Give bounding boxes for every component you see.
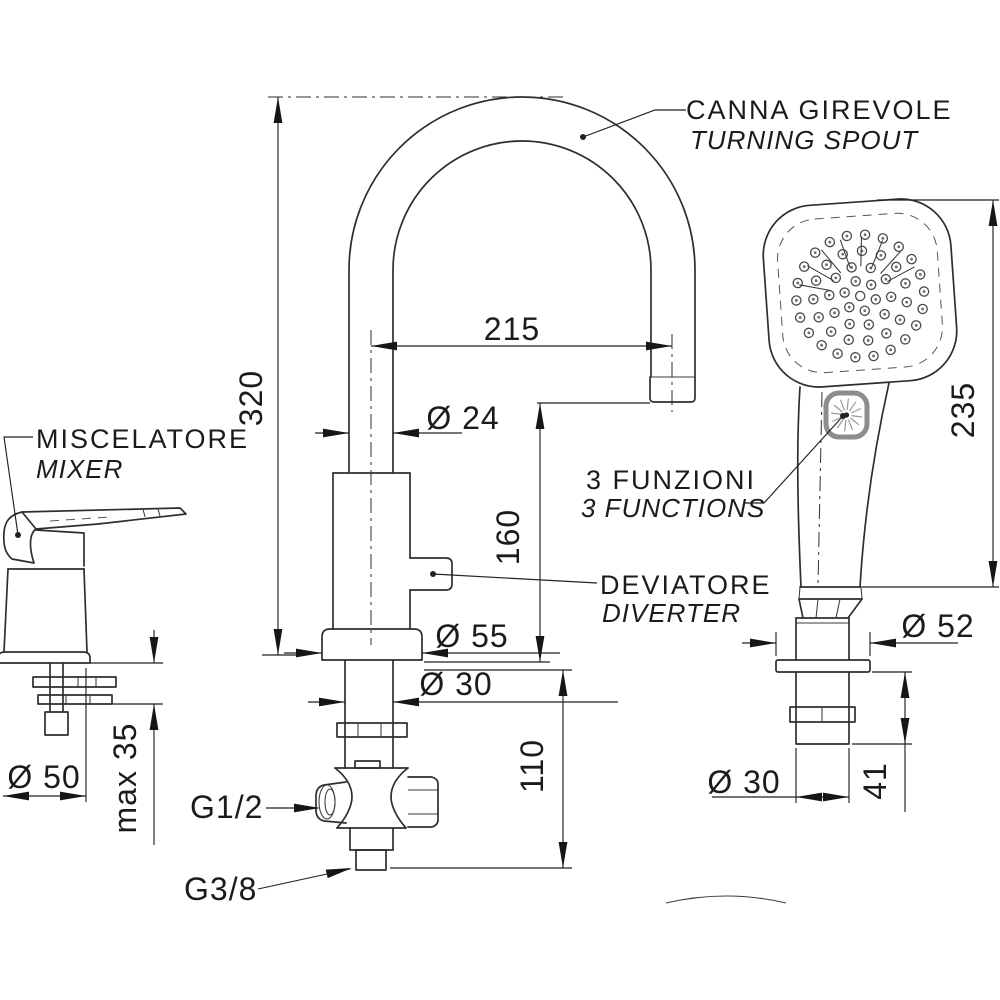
dim-holder-flange: Ø 52 <box>901 608 974 644</box>
label-functions-it: 3 FUNZIONI <box>586 465 756 495</box>
mixer-washer-bottom <box>38 695 112 704</box>
bottom-arc <box>666 896 786 903</box>
dim-inlet-thread: G1/2 <box>190 789 263 825</box>
dim-holder-under-deck: 41 <box>857 762 893 800</box>
dim-holder-shank: Ø 30 <box>707 764 780 800</box>
label-diverter-en: DIVERTER <box>602 598 741 628</box>
dimension-arrowheads <box>3 97 997 878</box>
dim-base-flange: Ø 55 <box>435 618 508 654</box>
mixer-lever <box>22 508 186 529</box>
dim-mixer-base: Ø 50 <box>7 759 80 795</box>
shower-holder <box>776 599 870 744</box>
label-mixer-en: MIXER <box>36 454 123 484</box>
label-spout-en: TURNING SPOUT <box>690 125 919 155</box>
function-button <box>826 393 867 437</box>
dim-max-deck: max 35 <box>107 723 143 834</box>
dimension-lines <box>3 97 999 889</box>
dim-under-deck: 110 <box>514 739 550 793</box>
hose-port <box>408 777 438 827</box>
spray-nozzles <box>787 226 933 366</box>
faucet-technical-diagram: CANNA GIREVOLE TURNING SPOUT MISCELATORE… <box>0 0 1000 1000</box>
label-diverter-it: DEVIATORE <box>600 570 772 600</box>
drawing-sheet: CANNA GIREVOLE TURNING SPOUT MISCELATORE… <box>0 0 1000 1000</box>
mixer-base-flange <box>0 652 90 663</box>
dim-outlet-height: 160 <box>490 509 526 565</box>
hand-shower <box>760 196 960 744</box>
mixer-outline <box>0 508 186 735</box>
dim-outlet-thread: G3/8 <box>184 871 257 907</box>
label-mixer-it: MISCELATORE <box>36 424 249 454</box>
g38-outlet <box>356 850 386 870</box>
leader-diverter <box>433 574 597 583</box>
dim-handshower-length: 235 <box>945 382 981 438</box>
turning-spout-outline <box>349 97 695 473</box>
dim-shank-diameter: Ø 30 <box>419 666 492 702</box>
label-functions-en: 3 FUNCTIONS <box>581 493 765 523</box>
dim-spout-reach: 215 <box>484 311 540 347</box>
mixer-nut <box>45 712 68 735</box>
holder-flange <box>776 660 870 672</box>
fixing-washer <box>337 723 407 737</box>
diverter-valve <box>316 761 438 870</box>
annotations: CANNA GIREVOLE TURNING SPOUT MISCELATORE… <box>7 95 981 907</box>
dim-spout-height: 320 <box>233 370 269 426</box>
mixer-hub <box>4 512 36 563</box>
dim-spout-tube-diameter: Ø 24 <box>426 400 499 436</box>
base-flange <box>322 629 422 660</box>
mixer-washer-top <box>33 677 116 687</box>
label-spout-it: CANNA GIREVOLE <box>686 95 953 125</box>
shower-head <box>760 196 960 391</box>
